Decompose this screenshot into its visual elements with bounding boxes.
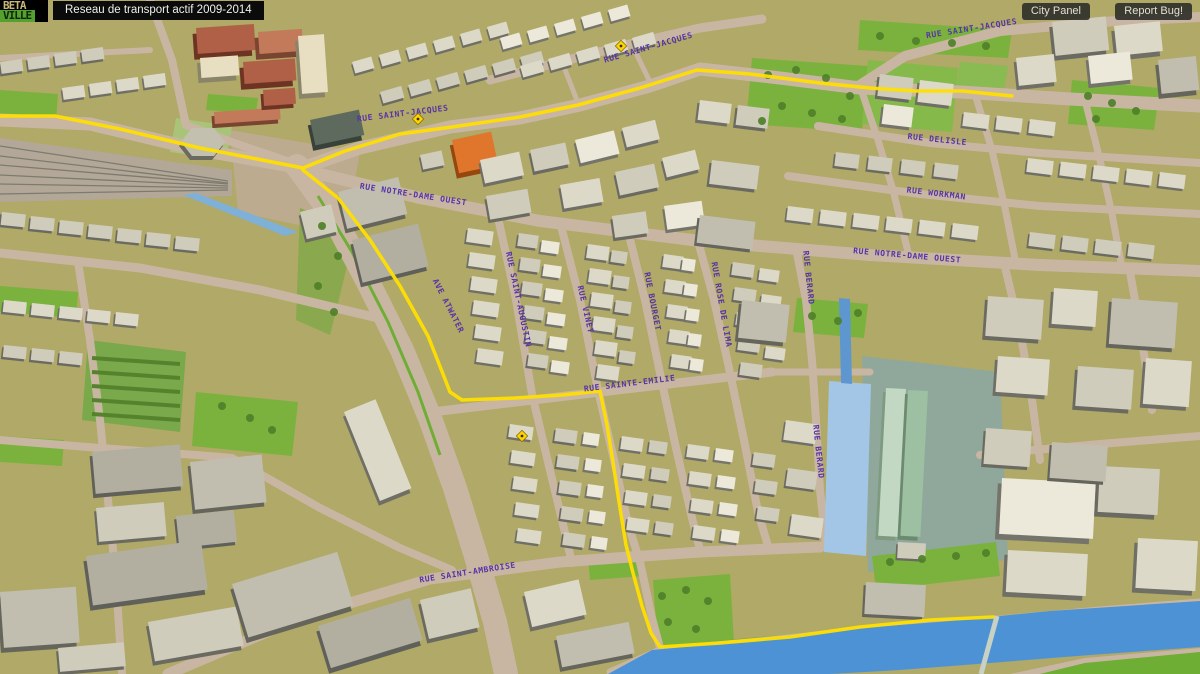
tree [1092,115,1100,123]
building [865,155,892,174]
building [1013,54,1057,90]
tree [314,282,322,290]
building [560,532,586,551]
building [1072,366,1134,414]
tree [808,312,816,320]
building [57,306,83,323]
building [982,296,1044,344]
building [86,224,113,242]
building [931,162,958,181]
building [57,351,83,368]
building [1024,158,1053,178]
building [1123,168,1152,188]
building [144,232,171,250]
building [1,345,27,362]
building [0,587,80,653]
building [690,525,716,544]
map-canvas[interactable]: RUE SAINT-JACQUESRUE SAINT-JACQUESRUE SA… [0,0,1200,674]
building [260,88,296,110]
building [1047,442,1108,485]
building [1059,235,1088,255]
building [762,346,785,363]
building [89,444,183,498]
building [192,24,256,60]
building [29,348,55,365]
building [556,480,582,499]
building [995,478,1096,545]
proposal-title: Reseau de transport actif 2009-2014 [53,1,264,20]
building [752,479,778,498]
building [610,211,649,241]
tree [778,102,786,110]
park [653,574,734,650]
building [735,300,790,347]
building [832,152,859,171]
building [1048,288,1097,331]
building [787,514,823,541]
city-panel-button[interactable]: City Panel [1022,3,1090,20]
building [750,452,776,471]
building [197,55,240,83]
building [295,34,329,99]
building [1092,239,1121,259]
building [592,340,618,360]
building [916,219,945,239]
tree [318,222,326,230]
building [517,257,541,275]
building [1132,538,1198,596]
building [737,362,763,381]
building [515,233,539,251]
tree [330,308,338,316]
building [28,216,55,234]
tree [982,42,990,50]
building [992,356,1049,400]
building [187,454,267,514]
building [1140,358,1192,411]
building [57,220,84,238]
building [1090,165,1119,185]
building [1155,56,1200,99]
report-bug-button[interactable]: Report Bug! [1115,3,1192,20]
tree [982,549,990,557]
tree [846,92,854,100]
building [898,159,925,178]
building [688,498,714,517]
tree [334,252,342,260]
building [1,300,27,317]
building [588,292,614,312]
building [784,468,818,493]
tree [792,66,800,74]
building [981,428,1032,470]
building [684,444,710,463]
building [620,463,646,482]
park [192,392,298,456]
building [784,206,813,226]
tree [912,37,920,45]
building [115,228,142,246]
betaville-logo: BETA VILLE [0,0,48,22]
building [1002,550,1088,601]
tree [758,117,766,125]
building [85,309,111,326]
building [94,502,167,545]
building [624,517,650,536]
tree [658,592,666,600]
building [173,236,200,254]
tree [1108,99,1116,107]
tree [834,317,842,325]
building [915,80,954,109]
tree [948,39,956,47]
building [1125,242,1154,262]
building [29,303,55,320]
building [949,223,978,243]
building [729,262,755,281]
building [754,506,780,525]
tree [886,558,894,566]
building [239,58,297,89]
building [584,244,610,264]
building [850,213,879,233]
building [1026,232,1055,252]
tree [268,426,276,434]
building [817,209,846,229]
building [554,454,580,473]
tree [704,597,712,605]
tree [808,109,816,117]
basin [824,381,871,556]
building [618,436,644,455]
tree [1132,107,1140,115]
building [113,312,139,329]
building [960,112,989,132]
building [686,471,712,490]
building [622,490,648,509]
building [1106,298,1178,353]
building [695,100,732,127]
logo-ville: VILLE [0,10,35,22]
building [1085,52,1133,89]
tree [876,32,884,40]
tree [854,309,862,317]
building [862,582,926,620]
tree [692,625,700,633]
building [879,104,914,131]
building [1026,119,1055,139]
tree [664,618,672,626]
building [883,216,912,236]
building [586,268,612,288]
building [558,506,584,525]
betaville-window: RUE SAINT-JACQUESRUE SAINT-JACQUESRUE SA… [0,0,1200,674]
building [1057,161,1086,181]
building [0,212,26,230]
building [756,268,779,285]
building [525,353,549,371]
building [552,428,578,447]
building [993,115,1022,135]
building [1156,172,1185,192]
tree [1084,92,1092,100]
tree [838,115,846,123]
building [1049,16,1110,61]
tree [822,74,830,82]
tree [952,552,960,560]
tree [682,586,690,594]
tree [218,402,226,410]
channel [839,298,852,384]
tree [918,555,926,563]
tree [246,414,254,422]
